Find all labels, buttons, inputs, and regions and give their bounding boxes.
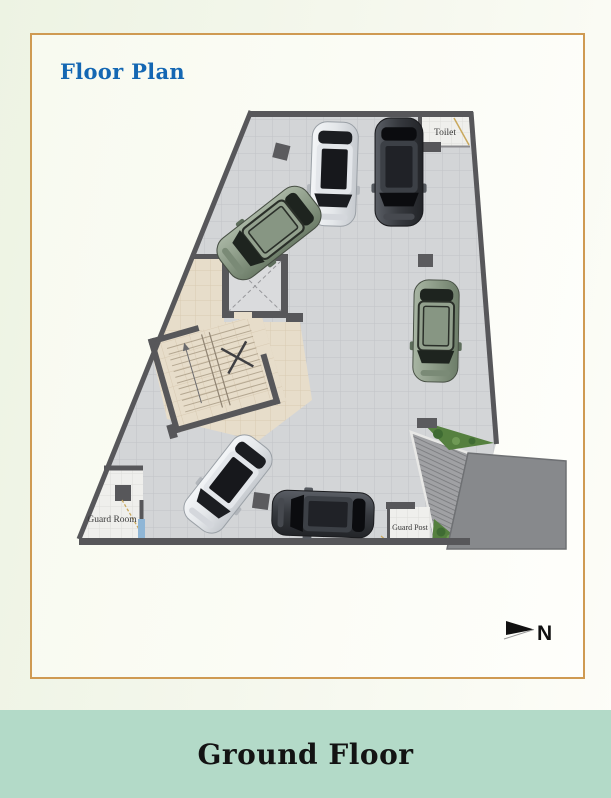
floor-banner-label: Ground Floor — [198, 738, 414, 771]
floor-banner: Ground Floor — [0, 710, 611, 798]
pillar — [115, 485, 131, 501]
driveway — [447, 453, 566, 549]
north-arrow-flag — [506, 621, 534, 635]
car-green-right — [409, 280, 463, 383]
north-label: N — [537, 622, 552, 645]
floor-plan-drawing: Toilet Guard Room Guard Post N — [0, 0, 611, 798]
guard-room-label: Guard Room — [87, 515, 137, 525]
north-arrow: N — [504, 621, 552, 645]
car-dark-top — [371, 118, 426, 226]
car-dark-bottom — [271, 486, 375, 541]
toilet-label: Toilet — [434, 128, 456, 138]
guard-post-label: Guard Post — [392, 523, 429, 532]
guard-room-fixture — [138, 519, 145, 538]
